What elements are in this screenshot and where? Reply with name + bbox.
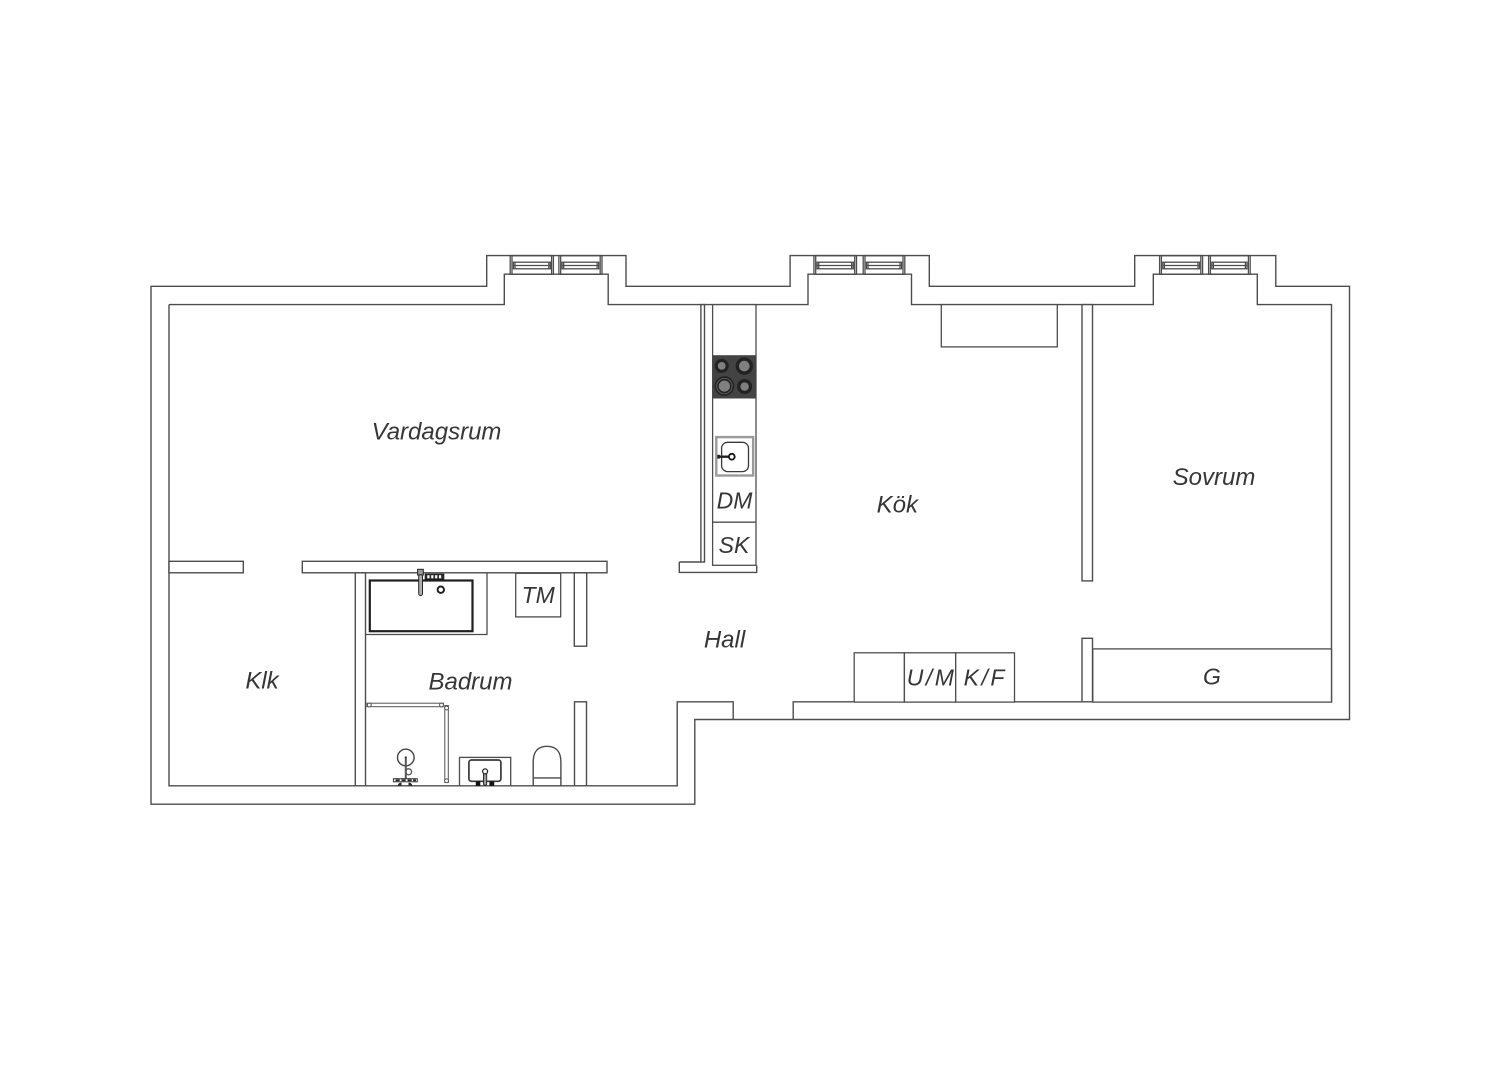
svg-text:SK: SK xyxy=(719,532,751,558)
svg-text:Sovrum: Sovrum xyxy=(1173,464,1256,491)
svg-text:Badrum: Badrum xyxy=(428,668,512,695)
svg-text:TM: TM xyxy=(522,582,556,608)
svg-text:K/F: K/F xyxy=(964,665,1007,691)
svg-text:U/M: U/M xyxy=(907,665,957,691)
svg-text:DM: DM xyxy=(717,488,754,514)
svg-text:Kök: Kök xyxy=(877,491,920,518)
svg-text:Klk: Klk xyxy=(245,668,280,695)
svg-text:Hall: Hall xyxy=(704,627,746,654)
svg-text:Vardagsrum: Vardagsrum xyxy=(372,419,502,446)
svg-text:G: G xyxy=(1203,664,1221,690)
